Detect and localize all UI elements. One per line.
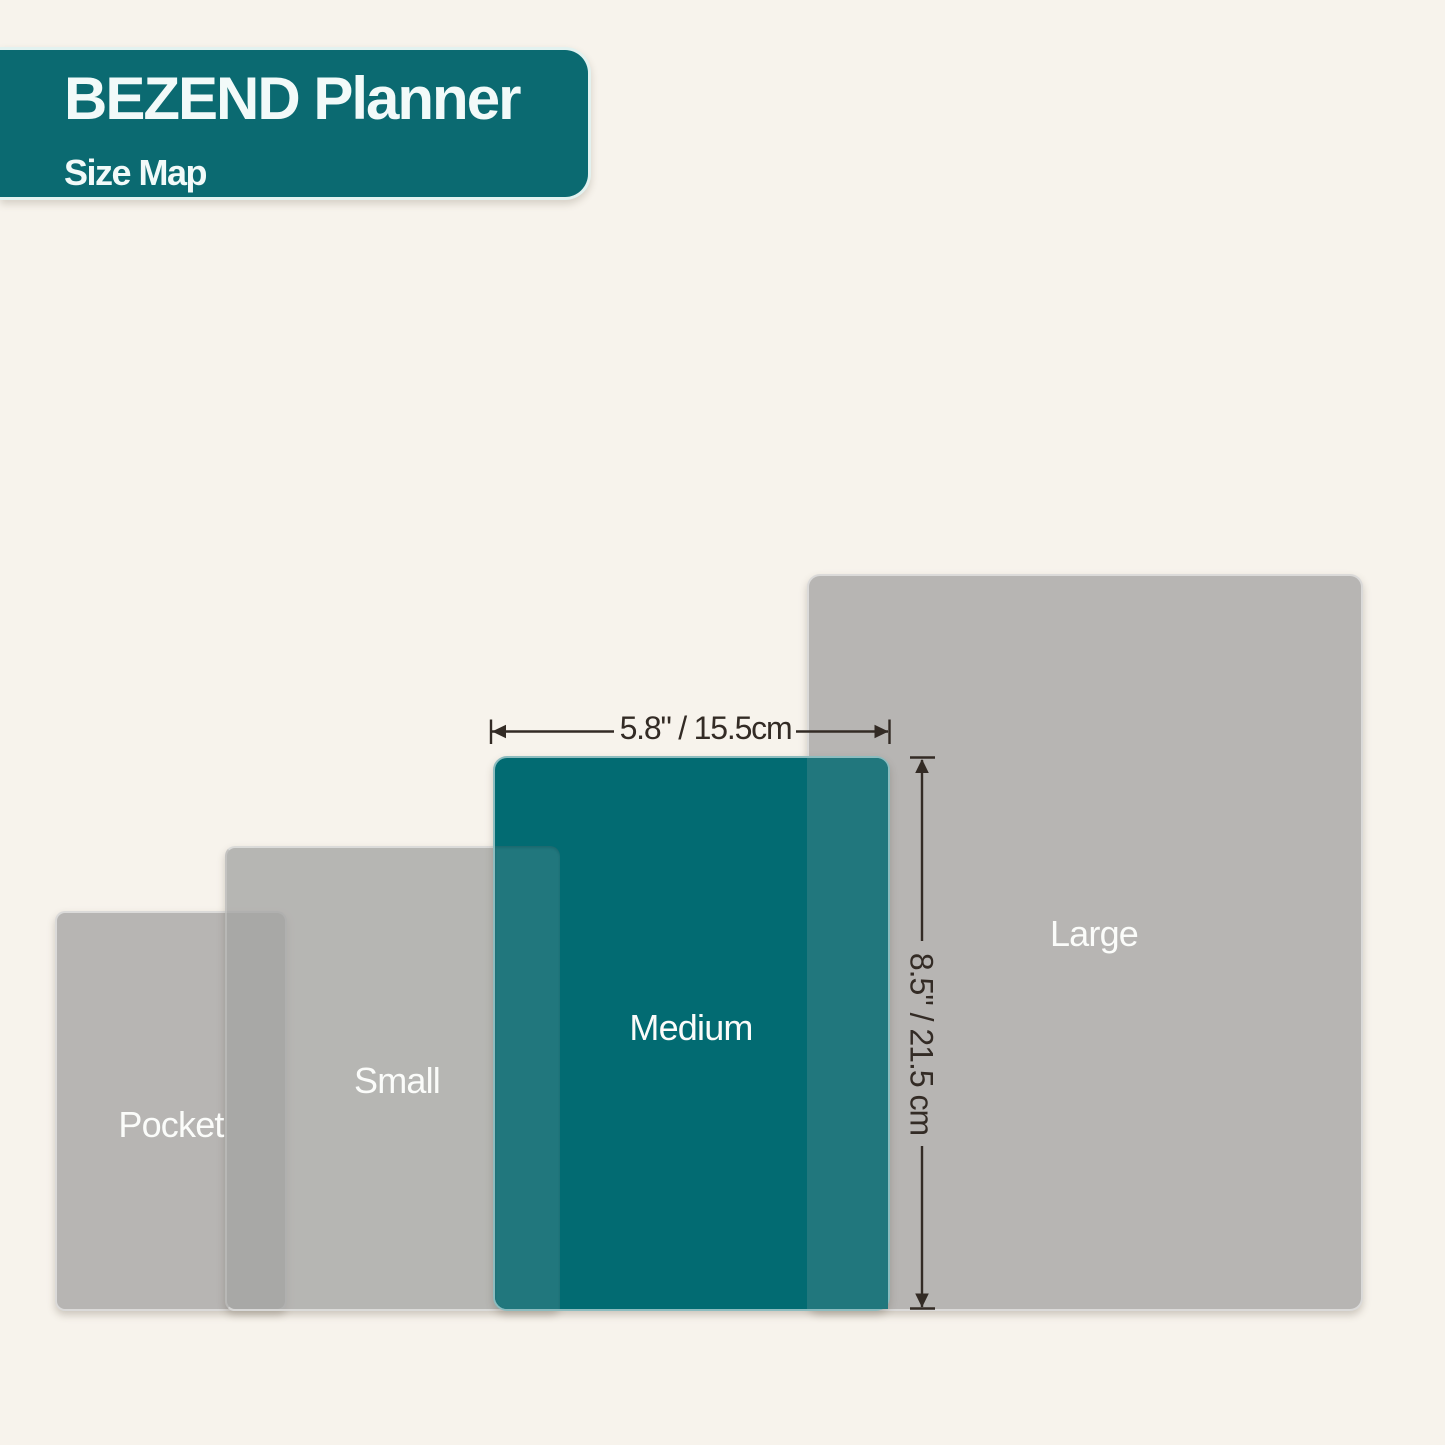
- svg-text:5.8" / 15.5cm: 5.8" / 15.5cm: [620, 710, 792, 746]
- svg-text:8.5" / 21.5 cm: 8.5" / 21.5 cm: [904, 953, 940, 1135]
